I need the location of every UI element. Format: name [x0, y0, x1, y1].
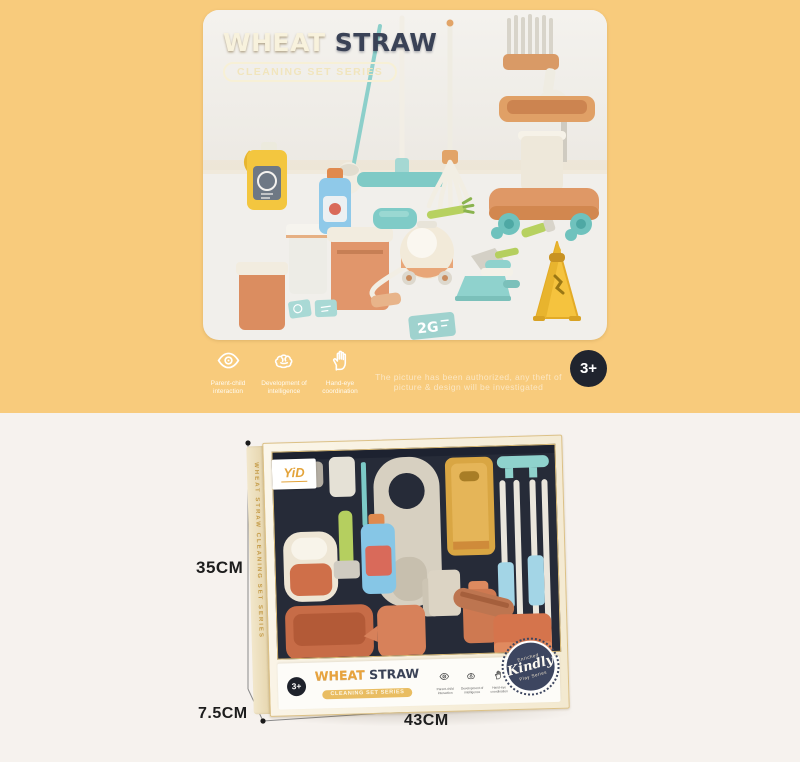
parent-child-icon	[216, 348, 241, 373]
intelligence-icon	[272, 348, 297, 373]
title-straw: STRAW	[335, 28, 438, 57]
stamp-main-text: Kindly	[506, 653, 555, 679]
hand-eye-icon	[328, 348, 353, 373]
feature-label: intelligence	[259, 388, 309, 396]
height-dimension-label: 35CM	[196, 558, 242, 578]
features-row: Parent-child interaction Development of …	[203, 348, 607, 397]
toy-soap-bar	[373, 208, 417, 229]
box-feature-icons: Parent-child interaction Development of …	[431, 667, 513, 696]
hero-section: 2G WHEAT STRAW CLEANING SET SERIES Paren…	[0, 0, 800, 413]
box-feature-intelligence: Development of intelligence	[458, 668, 486, 695]
product-listing-page: 2G WHEAT STRAW CLEANING SET SERIES Paren…	[0, 0, 800, 762]
box-feature-parent-child: Parent-child interaction	[431, 668, 459, 695]
brand-logo-rule	[281, 480, 307, 482]
box-title-wheat: WHEAT	[315, 667, 365, 683]
toy-detergent-jug	[247, 142, 288, 210]
stamp-bottom-text: Play Series	[519, 670, 548, 682]
hero-subtitle-pill: CLEANING SET SERIES	[223, 62, 397, 82]
page-title: WHEAT STRAW	[223, 30, 437, 55]
brand-corner-label: YiD	[272, 459, 317, 490]
boxed-bottle	[360, 513, 396, 594]
parent-child-icon	[439, 671, 450, 682]
feature-label: interaction	[203, 388, 253, 396]
feature-label: coordination	[315, 388, 365, 396]
age-badge: 3+	[570, 350, 607, 387]
box-logo-block: WHEAT STRAW CLEANING SET SERIES	[315, 667, 420, 700]
product-box: WHEAT STRAW CLEANING SET SERIES	[246, 435, 568, 718]
toy-white-bin	[286, 224, 330, 294]
title-wheat: WHEAT	[223, 28, 326, 57]
width-dimension-label: 43CM	[404, 712, 449, 730]
box-dimensions-section: 35CM 7.5CM 43CM WHEAT STRAW CLEANING SET…	[0, 413, 800, 762]
product-photo-card: 2G WHEAT STRAW CLEANING SET SERIES	[203, 10, 607, 340]
boxed-vacuum	[283, 531, 339, 602]
box-title-straw: STRAW	[369, 665, 419, 681]
box-subtitle-pill: CLEANING SET SERIES	[322, 688, 412, 700]
feature-label: Hand-eye	[315, 380, 365, 388]
boxed-trolley-tray	[285, 604, 374, 659]
feature-parent-child: Parent-child interaction	[203, 348, 253, 397]
toy-orange-bin-small	[236, 262, 288, 330]
feature-intelligence: Development of intelligence	[259, 348, 309, 397]
stamp-top-text: Enriched	[517, 652, 539, 663]
box-age-badge: 3+	[287, 676, 307, 696]
toy-card-2g: 2G	[408, 312, 456, 340]
boxed-caution-sign	[445, 457, 496, 556]
kindly-stamp: Enriched Kindly Play Series	[501, 637, 560, 696]
feature-label: Parent-child	[203, 380, 253, 388]
intelligence-icon	[466, 670, 477, 681]
box-title: WHEAT STRAW	[315, 667, 420, 682]
watermark-text: The picture has been authorized, any the…	[371, 372, 566, 392]
hero-title-block: WHEAT STRAW CLEANING SET SERIES	[223, 30, 437, 82]
box-bottom-band: 3+ WHEAT STRAW CLEANING SET SERIES Paren…	[277, 656, 560, 710]
feature-label: Development of	[259, 380, 309, 388]
card-print: 2G	[417, 319, 440, 337]
box-front-panel: YiD 3+ WHEAT STRAW CLEANING SET SERIES	[262, 435, 570, 717]
feature-hand-eye: Hand-eye coordination	[315, 348, 365, 397]
brand-logo: YiD	[283, 466, 305, 480]
boxed-pad	[329, 456, 356, 497]
depth-dimension-label: 7.5CM	[198, 705, 248, 723]
